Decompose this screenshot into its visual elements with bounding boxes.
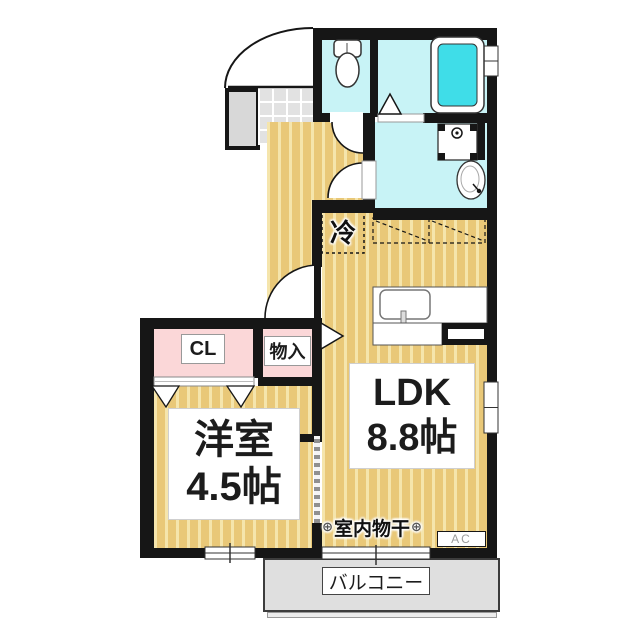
hallway-upper-floor (267, 122, 363, 205)
balcony-edge (267, 612, 497, 618)
bathroom-door-sill (378, 114, 424, 122)
wall-pan-stub (477, 122, 485, 160)
western-room-name: 洋室 (194, 417, 274, 464)
wall-washroom-south (373, 208, 497, 220)
refrigerator-label: 冷 (322, 210, 364, 253)
hallway-lower-floor (267, 205, 313, 318)
toilet-room-floor (322, 40, 370, 115)
bathroom-floor (378, 40, 487, 115)
entrance-door-arc (225, 28, 313, 88)
washroom-floor (375, 122, 487, 208)
ldk-door-leaf (314, 265, 321, 318)
storage-label: 物入 (264, 336, 311, 366)
closet-door-track (154, 377, 254, 386)
drying-marker-icon: ⊕ (411, 519, 422, 535)
wall-hall-east (312, 200, 322, 267)
balcony-label: バルコニー (322, 567, 430, 595)
ldk-label: LDK 8.8帖 (349, 363, 475, 469)
drying-marker-icon: ⊕ (322, 519, 333, 535)
sliding-door (314, 436, 320, 523)
ac-label: AC (437, 531, 486, 547)
western-room-size: 4.5帖 (186, 464, 282, 511)
ldk-size: 8.8帖 (367, 416, 458, 461)
entrance-porch (225, 88, 260, 150)
wall-bottom (140, 548, 497, 558)
wall-hall-washroom (363, 113, 375, 208)
floor-plan: CL 物入 冷 LDK 8.8帖 洋室 4.5帖 ⊕ 室内物干 ⊕ AC バルコ… (0, 0, 640, 640)
ldk-name: LDK (373, 371, 451, 416)
wall-top (313, 28, 497, 40)
wall-closet-divider (253, 327, 263, 378)
wall-closet-north (140, 318, 322, 329)
wall-room-divider-upper (312, 318, 322, 436)
indoor-drying-label: ⊕ 室内物干 ⊕ (316, 514, 428, 540)
closet-label: CL (181, 334, 225, 364)
wall-left-outer (140, 318, 154, 558)
wall-toilet-west (313, 28, 322, 122)
western-room-label: 洋室 4.5帖 (168, 408, 300, 520)
wall-toilet-bath (370, 35, 378, 117)
wall-right (487, 28, 497, 558)
